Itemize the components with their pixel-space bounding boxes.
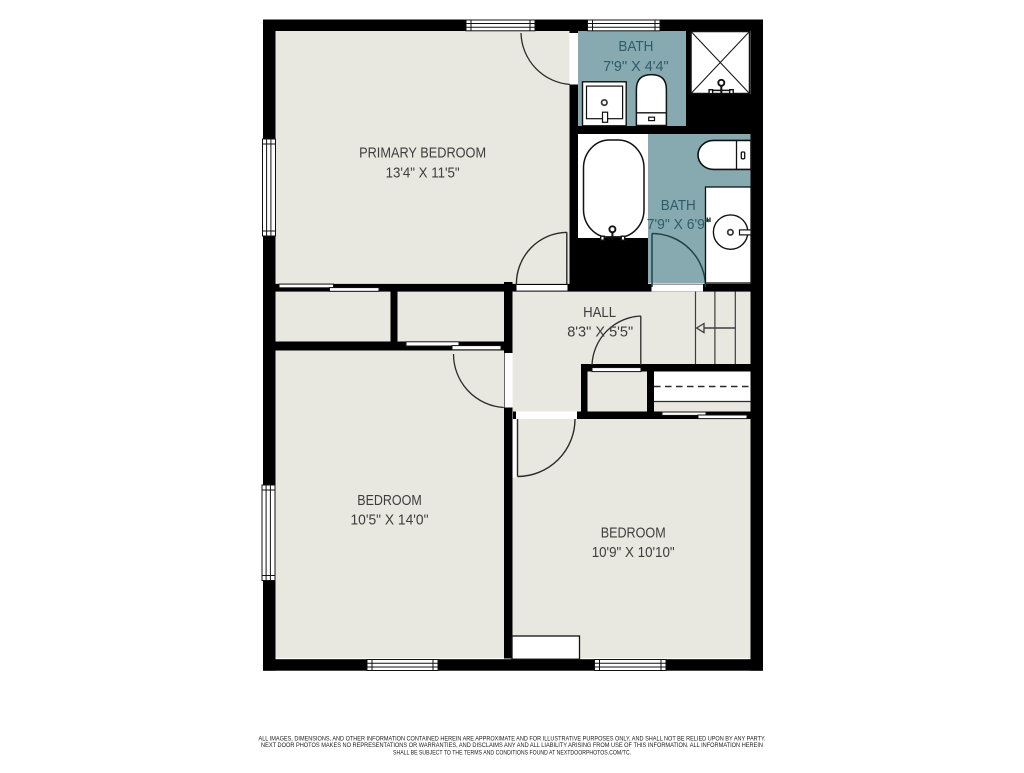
svg-text:BEDROOM: BEDROOM xyxy=(601,524,666,541)
svg-text:BEDROOM: BEDROOM xyxy=(357,492,422,509)
svg-text:BATH: BATH xyxy=(618,38,653,55)
svg-text:10'5" X 14'0": 10'5" X 14'0" xyxy=(351,512,429,529)
svg-text:10'9" X 10'10": 10'9" X 10'10" xyxy=(592,544,675,561)
svg-text:8'3" X 5'5": 8'3" X 5'5" xyxy=(567,324,633,341)
svg-text:PRIMARY BEDROOM: PRIMARY BEDROOM xyxy=(359,144,486,161)
svg-text:HALL: HALL xyxy=(583,304,616,321)
svg-text:SHALL BE SUBJECT TO THE TERMS: SHALL BE SUBJECT TO THE TERMS AND CONDIT… xyxy=(393,749,631,756)
svg-text:7'9" X 4'4": 7'9" X 4'4" xyxy=(603,58,669,75)
svg-text:7'9" X 6'9": 7'9" X 6'9" xyxy=(647,216,710,233)
svg-text:13'4" X 11'5": 13'4" X 11'5" xyxy=(386,165,460,182)
svg-text:BATH: BATH xyxy=(661,197,696,214)
svg-text:NEXT DOOR PHOTOS MAKES NO REPR: NEXT DOOR PHOTOS MAKES NO REPRESENTATION… xyxy=(261,742,763,749)
